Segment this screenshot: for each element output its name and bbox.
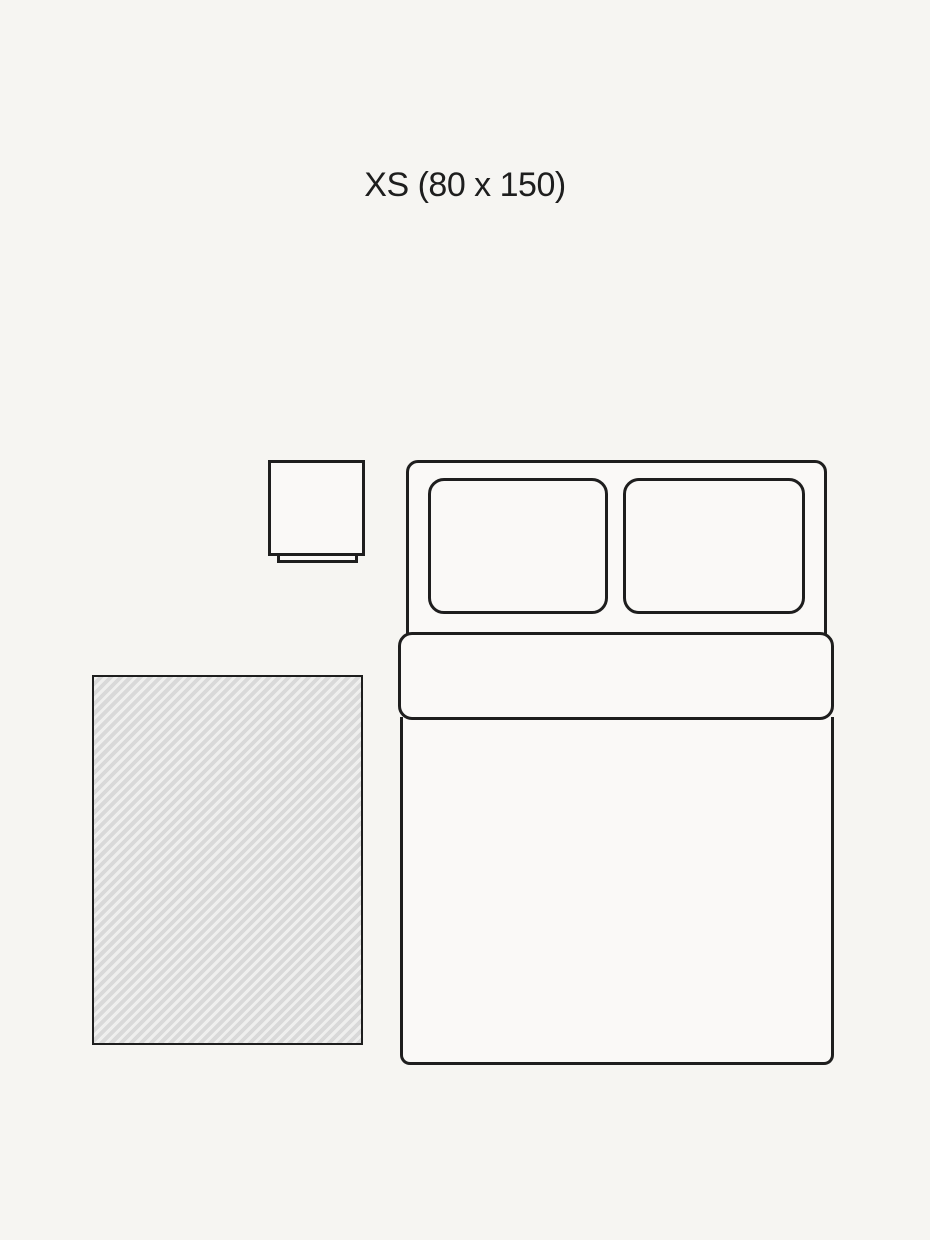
- nightstand-top: [268, 460, 365, 556]
- bed-sheet-fold: [398, 632, 834, 720]
- bed-duvet: [400, 717, 834, 1065]
- pillow-right: [623, 478, 805, 614]
- pillow-left: [428, 478, 608, 614]
- rug-size-guide-canvas: XS (80 x 150): [0, 0, 930, 1240]
- rug-hatched-area: [92, 675, 363, 1045]
- rug-size-label: XS (80 x 150): [0, 166, 930, 205]
- nightstand-base: [277, 553, 358, 563]
